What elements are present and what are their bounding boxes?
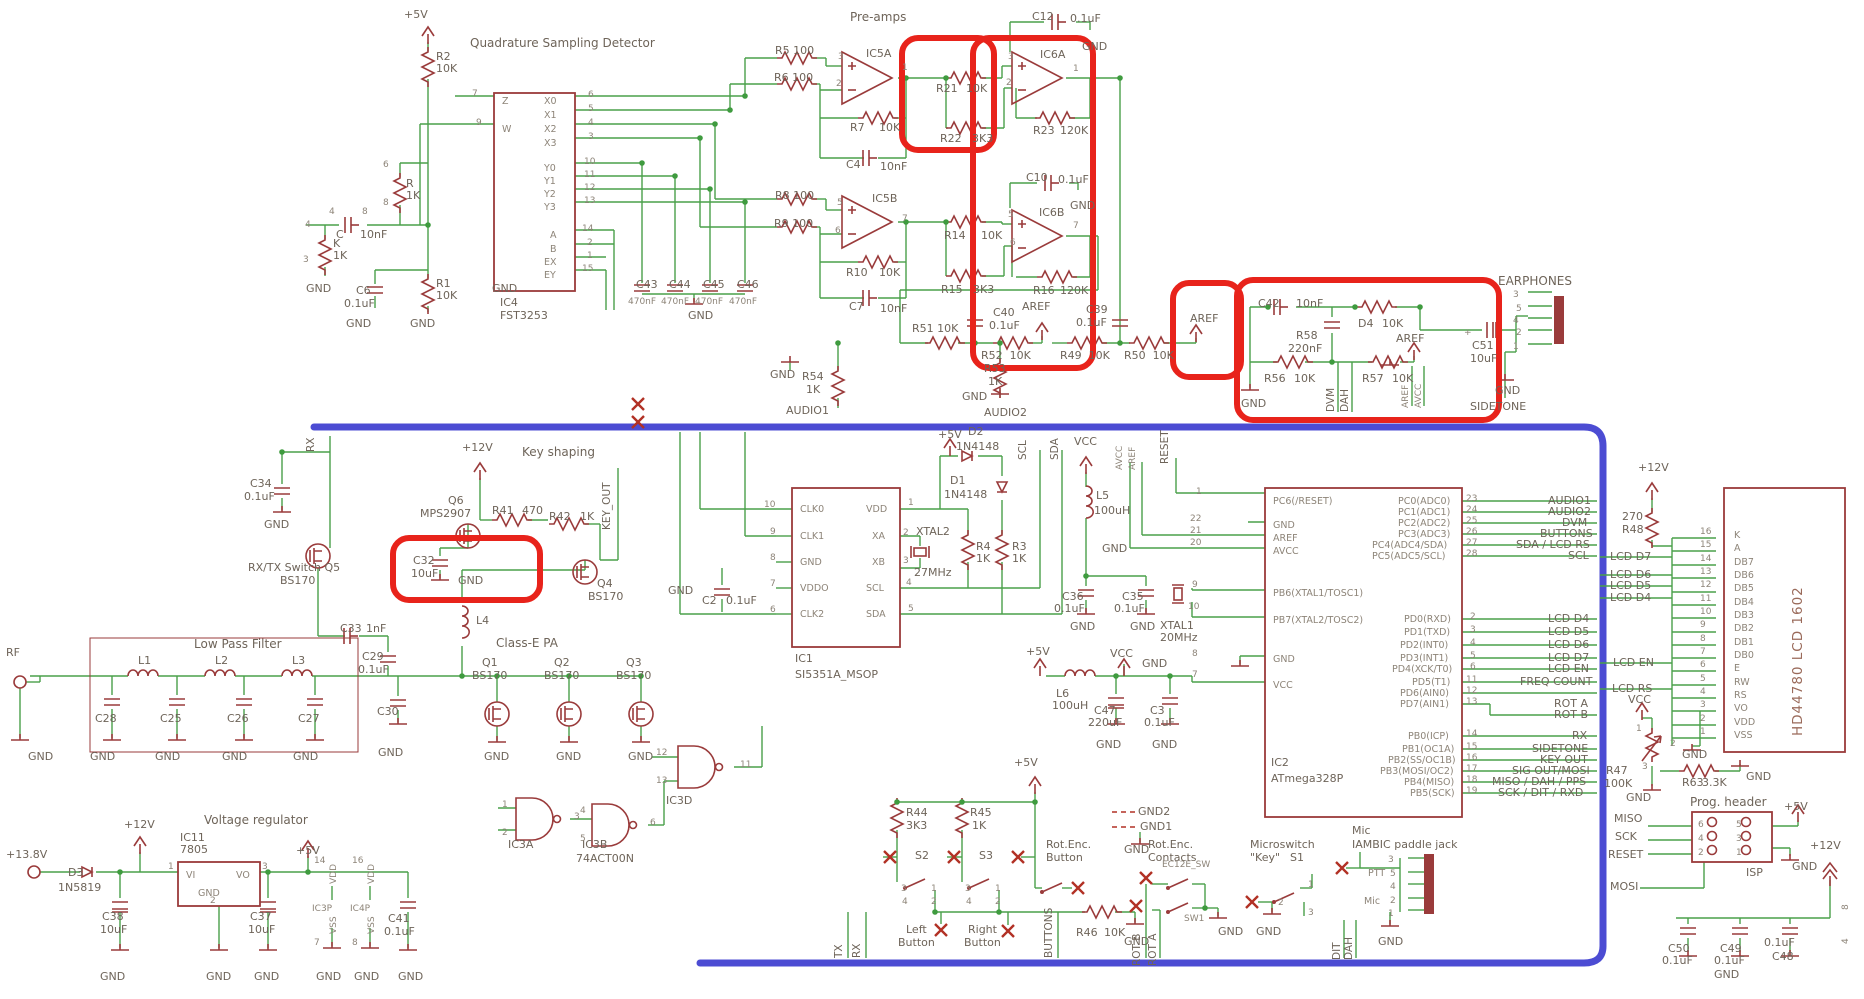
text-r57-138: R57	[1362, 372, 1384, 385]
text-3-52: 3	[303, 255, 309, 265]
text-a-491: A	[1734, 543, 1741, 554]
text-txt-146: +	[1464, 328, 1472, 338]
text-0-1uf-357: 0.1uF	[1054, 602, 1085, 615]
text-12v-520: +12V	[1810, 839, 1841, 852]
text-key-out-167: KEY_OUT	[601, 482, 613, 530]
text-1k-122: 1K	[806, 383, 821, 396]
text-left-270: Left	[906, 923, 927, 936]
text-ic5a-59: IC5A	[866, 47, 892, 60]
text-1k-259: 1K	[972, 819, 987, 832]
text-w-5: W	[502, 124, 512, 135]
junction-dot-8	[742, 199, 748, 205]
ground-symbol-73	[560, 736, 578, 742]
text-ic6a-91: IC6A	[1040, 48, 1066, 61]
text-2-58: 2	[836, 79, 842, 89]
junction-dot-2	[727, 107, 733, 113]
symbol-ch-9	[863, 150, 877, 166]
text-7-103: 7	[1073, 221, 1079, 231]
text-b-15: B	[550, 244, 557, 255]
text-0-1uf-525: 0.1uF	[1764, 936, 1795, 949]
text-19-432: 19	[1466, 786, 1478, 796]
text-14-28: 14	[582, 224, 594, 234]
power-arrow-symbol-136	[1118, 659, 1130, 676]
text-gnd-352: GND	[1102, 542, 1127, 555]
text-22-364: 22	[1190, 514, 1201, 524]
text-28-418: 28	[1466, 549, 1478, 559]
text-10uf-145: 10uF	[1470, 352, 1497, 365]
symbol-cv-80	[236, 699, 252, 705]
text-y1-11: Y1	[543, 176, 556, 187]
text-lcd-d7-456: LCD D7	[1610, 550, 1651, 563]
text-clk2-317: CLK2	[800, 609, 824, 620]
text-1-489: 1	[1700, 727, 1706, 737]
text-12v-453: +12V	[1638, 461, 1669, 474]
junction-dot-20	[459, 673, 465, 679]
symbol-rh-29	[1037, 271, 1077, 283]
text-r10-71: R10	[846, 266, 868, 279]
text-10uf-225: 10uF	[248, 923, 275, 936]
text-14-427: 14	[1466, 729, 1478, 739]
junction-dot-15	[1117, 75, 1123, 81]
text-5v-518: +5V	[1784, 800, 1808, 813]
text-11-424: 11	[1466, 675, 1477, 685]
text-0-1uf-179: 0.1uF	[358, 663, 389, 676]
text-4-22: 4	[588, 118, 594, 128]
text-db7-492: DB7	[1734, 557, 1754, 568]
text-c41-239: C41	[388, 912, 410, 925]
text-q1-183: Q1	[482, 656, 498, 669]
text-ic3p-231: IC3P	[312, 904, 333, 914]
text-1n4148-340: 1N4148	[956, 440, 999, 453]
text-2-221: 2	[210, 896, 216, 906]
text-74act00n-251: 74ACT00N	[576, 852, 634, 865]
text-r9-100-66: R9 100	[774, 217, 813, 230]
text-1-263: 1	[931, 884, 937, 894]
text-gnd-189: GND	[484, 750, 509, 763]
text-ex-16: EX	[544, 257, 557, 268]
text-db4-495: DB4	[1734, 597, 1754, 608]
text-12-243: 12	[656, 748, 667, 758]
text-0-1uf-240: 0.1uF	[384, 925, 415, 938]
text-r52-10k-114: R52 10K	[981, 349, 1032, 362]
text-sck-470: SCK	[1615, 830, 1638, 843]
text-1k-165: 1K	[580, 510, 595, 523]
text-atmega328p-384: ATmega328P	[1271, 772, 1344, 785]
text-d2-339: D2	[968, 425, 983, 438]
text-2-515: 2	[1698, 848, 1704, 858]
text-dit-306: DIT	[1331, 942, 1343, 960]
symbol-nd-101	[516, 798, 561, 840]
symbol-rh-20	[946, 216, 986, 228]
symbol-lh-76	[205, 670, 235, 676]
text-pb5-sck-412: PB5(SCK)	[1410, 788, 1455, 799]
text-4-529: 4	[1841, 938, 1851, 944]
text-6-484: 6	[1700, 660, 1706, 670]
junction-dot-29	[1202, 905, 1208, 911]
symbol-cv-44	[1324, 322, 1340, 328]
ground-symbol-141	[1231, 660, 1249, 666]
text-gnd-120: GND	[770, 368, 795, 381]
text-23-413: 23	[1466, 494, 1477, 504]
text-16-429: 16	[1466, 753, 1478, 763]
text-6-327: 6	[770, 605, 776, 615]
text-l4-177: L4	[476, 614, 489, 627]
text-pc5-adc5-scl-398: PC5(ADC5/SCL)	[1372, 551, 1445, 562]
text-vss-505: VSS	[1734, 730, 1753, 741]
junction-dot-37	[835, 340, 841, 346]
text-470nf-79: 470nF	[628, 297, 656, 307]
text-1-30: 1	[587, 251, 593, 261]
text-2-419: 2	[1470, 612, 1476, 622]
text-c12-88: C12	[1032, 10, 1054, 23]
text-ic3b-250: IC3B	[582, 838, 607, 851]
text-pc6-reset-385: PC6(/RESET)	[1273, 496, 1332, 507]
text-r5-100-55: R5 100	[775, 44, 814, 57]
text-6-102: 6	[1010, 238, 1016, 248]
text-vdd-504: VDD	[1734, 717, 1755, 728]
text-r15-108: R15	[941, 283, 963, 296]
text-8-370: 8	[1192, 649, 1198, 659]
text-rs-502: RS	[1734, 690, 1747, 701]
text-1k-125: 1K	[988, 375, 1003, 388]
text-7-371: 7	[1192, 670, 1198, 680]
text-vcc-349: VCC	[1074, 435, 1097, 448]
text-xtal2-333: XTAL2	[916, 525, 950, 538]
text-pd3-int1-402: PD3(INT1)	[1400, 653, 1448, 664]
text-gnd-83: GND	[688, 309, 713, 322]
text-r45-258: R45	[970, 806, 992, 819]
text-9-481: 9	[1700, 620, 1706, 630]
symbol-rh-45	[1357, 301, 1397, 313]
text-gnd-519: GND	[1792, 860, 1817, 873]
text-x0-6: X0	[544, 96, 557, 107]
symbol-ph-150	[1708, 818, 1717, 827]
text-10nf-64: 10nF	[880, 160, 907, 173]
text-5v-372: +5V	[1026, 645, 1050, 658]
symbol-cv-81	[307, 699, 323, 705]
text-db5-494: DB5	[1734, 583, 1754, 594]
text-sck-dit-rxd-452: SCK / DIT / RXD	[1498, 786, 1583, 799]
text-2-294: 2	[1278, 898, 1284, 908]
symbol-cv-161	[1782, 928, 1798, 934]
junction-dot-38	[997, 340, 1003, 346]
ground-symbol-96	[210, 944, 228, 950]
text-1-293: 1	[1308, 880, 1314, 890]
junction-dot-32	[959, 799, 965, 805]
text-z-4: Z	[502, 96, 509, 107]
text-1-247: 1	[502, 800, 508, 810]
ground-symbol-83	[168, 734, 186, 740]
text-gnd-509: GND	[1746, 770, 1771, 783]
text-r51-10k-110: R51 10K	[912, 322, 959, 335]
text-20-366: 20	[1190, 538, 1202, 548]
text-mic-297: Mic	[1352, 824, 1371, 837]
text-button-273: Button	[964, 936, 1001, 949]
text-gnd-506: GND	[1682, 748, 1707, 761]
text-r53-124: R53	[984, 362, 1006, 375]
text-vdd-318: VDD	[866, 504, 887, 515]
text-pd5-t1-404: PD5(T1)	[1412, 677, 1450, 688]
text-4-252: 4	[580, 806, 586, 816]
text-5-151: 5	[1516, 304, 1522, 314]
text-r23-95: R23	[1033, 124, 1055, 137]
text-3-301: 3	[1388, 855, 1394, 865]
text-2-93: 2	[1006, 78, 1012, 88]
text-gnd-204: GND	[28, 750, 53, 763]
no-connect-mark-172	[1130, 900, 1142, 912]
symbol-cv-160	[1732, 928, 1748, 934]
text-clk1-314: CLK1	[800, 531, 824, 542]
text-1-367: 1	[1196, 487, 1202, 497]
text-buttons-283: BUTTONS	[1043, 907, 1055, 958]
text-ic1-311: IC1	[795, 652, 813, 665]
text-d4-132: D4	[1358, 317, 1373, 330]
text-bs170-184: BS170	[472, 669, 507, 682]
text-3-330: 3	[903, 556, 909, 566]
text-3-222: 3	[262, 862, 268, 872]
text-db3-496: DB3	[1734, 610, 1754, 621]
text-mic-303: Mic	[1364, 896, 1380, 907]
text-c37-224: C37	[250, 910, 272, 923]
text-scl-438: SCL	[1568, 549, 1590, 562]
text-rw-501: RW	[1734, 677, 1750, 688]
text-gnd-90: GND	[1082, 40, 1107, 53]
text-gnd-170: GND	[458, 574, 483, 587]
text-c38-215: C38	[102, 910, 124, 923]
text-r48-455: R48	[1622, 523, 1644, 536]
text-c51-144: C51	[1472, 339, 1494, 352]
text-c34-156: C34	[250, 477, 272, 490]
text-220uf-378: 220uF	[1088, 716, 1122, 729]
power-arrow-symbol-142	[1646, 483, 1658, 500]
text-7-18: 7	[472, 89, 478, 99]
text-0-1uf-524: 0.1uF	[1714, 954, 1745, 967]
text-11-25: 11	[584, 170, 595, 180]
text-r41-162: R41	[492, 504, 514, 517]
text-gnd-201: GND	[155, 750, 180, 763]
text-d1-341: D1	[950, 474, 965, 487]
text-0-1uf-380: 0.1uF	[1144, 716, 1175, 729]
text-lcd-en-443: LCD EN	[1548, 662, 1589, 675]
text-2-248: 2	[502, 828, 508, 838]
text-2-304: 2	[1390, 896, 1396, 906]
text-14-476: 14	[1700, 554, 1712, 564]
text-gnd-308: GND	[1378, 935, 1403, 948]
power-arrow-symbol-104	[1029, 777, 1041, 794]
power-arrow-symbol-158	[1823, 863, 1837, 886]
text-mps2907-161: MPS2907	[420, 507, 471, 520]
text-1-305: 1	[1388, 909, 1394, 919]
junction-dot-28	[1352, 304, 1358, 310]
text-rot-enc-274: Rot.Enc.	[1046, 838, 1091, 851]
text-gnd1-277: GND1	[1140, 820, 1172, 833]
text-10-323: 10	[764, 500, 776, 510]
text-0-1uf-112: 0.1uF	[989, 319, 1020, 332]
text-3k3-257: 3K3	[906, 819, 927, 832]
symbol-lh-75	[128, 670, 158, 676]
text-pc3-adc3-396: PC3(ADC3)	[1398, 529, 1450, 540]
text-mosi-472: MOSI	[1610, 880, 1638, 893]
symbol-ch-13	[863, 290, 877, 306]
text-gnd-468: GND	[1626, 791, 1651, 804]
text-e-500: E	[1734, 663, 1740, 674]
text-2-488: 2	[1700, 714, 1706, 724]
text-10k-136: 10K	[1294, 372, 1316, 385]
text-pc4-adc4-sda-397: PC4(ADC4/SDA)	[1372, 540, 1447, 551]
text-s1-292: S1	[1290, 851, 1304, 864]
text-7-70: 7	[902, 214, 908, 224]
text-4-45: 4	[329, 207, 335, 217]
text-1-60: 1	[902, 63, 908, 73]
ground-symbol-97	[259, 944, 277, 950]
text-ic4-32: IC4	[500, 296, 518, 309]
text-r58-130: R58	[1296, 329, 1318, 342]
text-5-512: 5	[1736, 820, 1742, 830]
text-reset-471: RESET	[1608, 848, 1644, 861]
text-24-414: 24	[1466, 505, 1478, 515]
text-gnd-237: GND	[316, 970, 341, 983]
text-10k-133: 10K	[1382, 317, 1404, 330]
text-270-454: 270	[1622, 510, 1643, 523]
text-button-271: Button	[898, 936, 935, 949]
text-2-329: 2	[903, 528, 909, 538]
text-ic5b-69: IC5B	[872, 192, 897, 205]
text-1-94: 1	[1073, 64, 1079, 74]
text-x1-7: X1	[544, 110, 557, 121]
symbol-fet-69	[485, 702, 509, 726]
junction-dot-27	[1329, 359, 1335, 365]
symbol-fet-70	[557, 702, 581, 726]
text-gnd-158: GND	[264, 518, 289, 531]
symbol-cv-159	[1680, 928, 1696, 934]
text-3-23: 3	[588, 132, 594, 142]
power-arrow-symbol-53	[422, 27, 434, 44]
text-gnd-386: GND	[1273, 520, 1295, 531]
text-9-324: 9	[770, 527, 776, 537]
text-avcc-143: AVCC	[1414, 384, 1424, 408]
no-connect-mark-168	[935, 924, 947, 936]
text-12v-218: +12V	[124, 818, 155, 831]
junction-dot-1	[742, 93, 748, 99]
text-vss-234: VSS	[367, 916, 377, 934]
text-6-254: 6	[650, 818, 656, 828]
text-r6-100-56: R6 100	[774, 71, 813, 84]
text-0-1uf-89: 0.1uF	[1070, 12, 1101, 25]
text-gnd-39: GND	[410, 317, 435, 330]
text-3k3-109: 3K3	[973, 283, 994, 296]
text-vddo-316: VDDO	[800, 583, 829, 594]
text-r42-164: R42	[549, 510, 571, 523]
text-vcc-392: VCC	[1273, 680, 1293, 691]
text-pre-amps-54: Pre-amps	[850, 10, 906, 24]
symbol-dv-123	[997, 482, 1007, 492]
text-gnd-53: GND	[306, 282, 331, 295]
text-5v-255: +5V	[1014, 756, 1038, 769]
text-rx-tx-switch-q5-173: RX/TX Switch Q5	[248, 561, 340, 574]
text-c6-36: C6	[356, 284, 371, 297]
text-4-421: 4	[1470, 638, 1476, 648]
text-10k-85: 10K	[966, 82, 988, 95]
text-aref-354: AREF	[1128, 447, 1138, 470]
text-16-228: 16	[352, 856, 364, 866]
text-x3-9: X3	[544, 138, 557, 149]
symbol-cph-48	[1487, 322, 1496, 338]
text-5-101: 5	[1008, 210, 1014, 220]
text-2-269: 2	[995, 897, 1001, 907]
junction-dot-0	[425, 222, 431, 228]
text-vdd-229: VDD	[329, 864, 339, 884]
text-q6-160: Q6	[448, 494, 464, 507]
text-4-268: 4	[966, 897, 972, 907]
text-l5-350: L5	[1096, 489, 1109, 502]
text-vo-503: VO	[1734, 703, 1748, 714]
symbol-fet-71	[629, 702, 653, 726]
symbol-rh-34	[1067, 337, 1107, 349]
highlight-box-3	[1173, 283, 1241, 377]
text-10k-139: 10K	[1392, 372, 1414, 385]
text-r54-121: R54	[802, 370, 824, 383]
text-q4-171: Q4	[597, 577, 613, 590]
power-arrow-symbol-128	[1080, 457, 1092, 474]
ground-symbol-38	[781, 356, 799, 362]
no-connect-mark-170	[1072, 882, 1084, 894]
symbol-sw-111	[1166, 903, 1188, 914]
text-10k-107: 10K	[981, 229, 1003, 242]
text-lcd-d6-441: LCD D6	[1548, 638, 1589, 651]
symbol-cn-87	[14, 676, 26, 688]
text-1nf-176: 1nF	[366, 622, 386, 635]
text-3-487: 3	[1700, 700, 1706, 710]
text-q2-185: Q2	[554, 656, 570, 669]
text-prog-header-510: Prog. header	[1690, 795, 1767, 809]
ground-symbol-146	[1643, 784, 1661, 790]
text-2-29: 2	[587, 238, 593, 248]
text-fst3253-33: FST3253	[500, 309, 548, 322]
text-10uf-169: 10uF	[411, 567, 438, 580]
text-10nf-129: 10nF	[1296, 297, 1323, 310]
text-ic3d-242: IC3D	[666, 794, 692, 807]
text-q3-187: Q3	[626, 656, 642, 669]
text-aref-113: AREF	[1022, 300, 1050, 313]
text-clk0-313: CLK0	[800, 504, 824, 515]
text-pb0-icp-407: PB0(ICP)	[1408, 731, 1449, 742]
symbol-ph-151	[1742, 818, 1751, 827]
text-ey-17: EY	[544, 270, 556, 281]
text-hd44780-lcd-1602-473: HD44780 LCD 1602	[1790, 586, 1806, 736]
text-14-227: 14	[314, 856, 326, 866]
text-4-486: 4	[1700, 687, 1706, 697]
text-20mhz-363: 20MHz	[1160, 631, 1198, 644]
text-gnd2-276: GND2	[1138, 805, 1170, 818]
text-10k-72: 10K	[879, 266, 901, 279]
text-sw1-282: SW1	[1184, 914, 1204, 924]
junction-dot-6	[672, 173, 678, 179]
text-rx-447: RX	[1572, 729, 1588, 742]
power-arrow-symbol-42	[1408, 343, 1420, 360]
text-5-422: 5	[1470, 651, 1476, 661]
junction-dot-26	[305, 869, 311, 875]
text-10uf-216: 10uF	[100, 923, 127, 936]
text-0-1uf-98: 0.1uF	[1058, 173, 1089, 186]
text-5-67: 5	[837, 198, 843, 208]
text-1k-43: 1K	[406, 189, 421, 202]
text-bs170-188: BS170	[616, 669, 651, 682]
text-ic3a-246: IC3A	[508, 838, 534, 851]
symbol-xth-126	[911, 546, 929, 558]
text-gnd-289: GND	[1218, 925, 1243, 938]
ground-symbol-51	[1241, 384, 1259, 390]
text-y2-12: Y2	[543, 189, 556, 200]
